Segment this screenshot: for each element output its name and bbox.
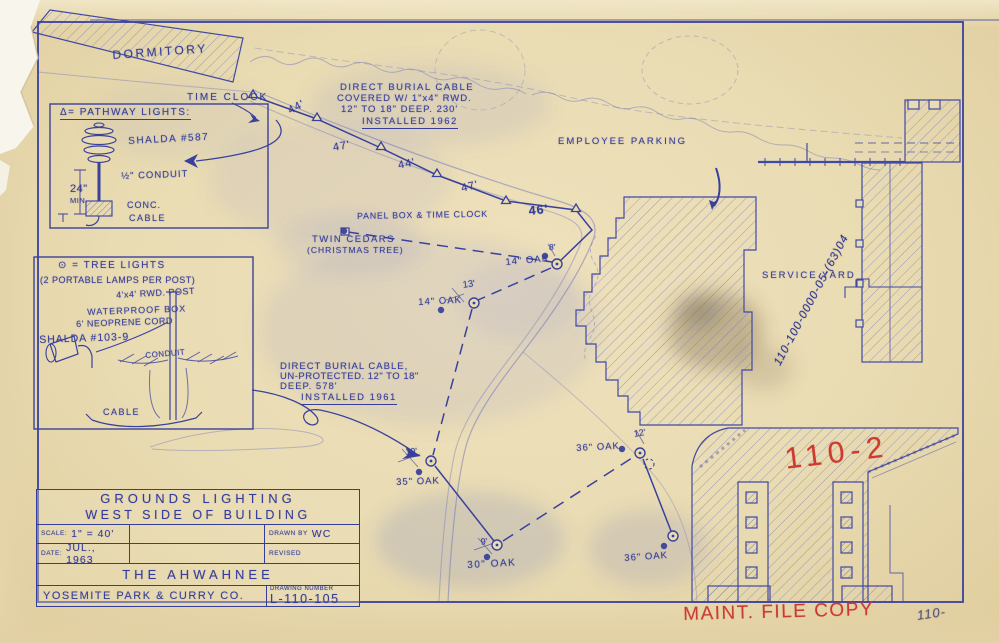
scale-value: 1" = 40' bbox=[71, 528, 114, 540]
wing-base-left bbox=[708, 586, 770, 602]
tree-light-symbol-dot bbox=[556, 263, 559, 266]
tree-symbol bbox=[542, 253, 548, 259]
tree-light-symbol-dot bbox=[473, 302, 476, 305]
tree-symbol bbox=[341, 228, 347, 234]
tree-symbol bbox=[484, 554, 490, 560]
tree-symbol bbox=[416, 469, 422, 475]
drawn-by-label: DRAWN BY bbox=[269, 530, 308, 537]
pathway-light-symbol bbox=[572, 204, 581, 212]
title-block-spacer bbox=[130, 525, 264, 544]
wing-base-right bbox=[842, 586, 892, 602]
drawing-number-value: L-110-105 bbox=[270, 592, 356, 606]
legend-tree-lights bbox=[34, 257, 253, 429]
central-service-building bbox=[576, 197, 756, 425]
company-name: YOSEMITE PARK & CURRY CO. bbox=[37, 586, 266, 606]
tree-symbol bbox=[661, 543, 667, 549]
drawing-title-line1: GROUNDS LIGHTING bbox=[100, 491, 295, 506]
tree-light-symbol-dot bbox=[639, 452, 642, 455]
title-block-spacer bbox=[130, 544, 264, 563]
scale-label: SCALE: bbox=[41, 530, 67, 537]
date-value: JUL., 1963 bbox=[66, 542, 125, 566]
tree-symbol bbox=[438, 307, 444, 313]
project-name: THE AHWAHNEE bbox=[37, 563, 359, 585]
blueprint-sheet: DORMITORYTIME CLOCKDIRECT BURIAL CABLECO… bbox=[0, 0, 999, 643]
drawn-by-value: WC bbox=[312, 528, 332, 540]
title-block: GROUNDS LIGHTING WEST SIDE OF BUILDING S… bbox=[36, 489, 360, 607]
date-label: DATE: bbox=[41, 550, 62, 557]
dormitory-building bbox=[32, 10, 243, 82]
tree-light-symbol-dot bbox=[430, 460, 433, 463]
tree-symbol bbox=[619, 446, 625, 452]
tree-light-symbol-dot bbox=[672, 535, 675, 538]
east-column-building bbox=[862, 163, 922, 362]
tree-light-symbol-dot bbox=[496, 544, 499, 547]
revised-label: REVISED bbox=[269, 550, 301, 557]
drawing-title-line2: WEST SIDE OF BUILDING bbox=[85, 508, 310, 522]
hotel-main-mass bbox=[692, 428, 958, 602]
